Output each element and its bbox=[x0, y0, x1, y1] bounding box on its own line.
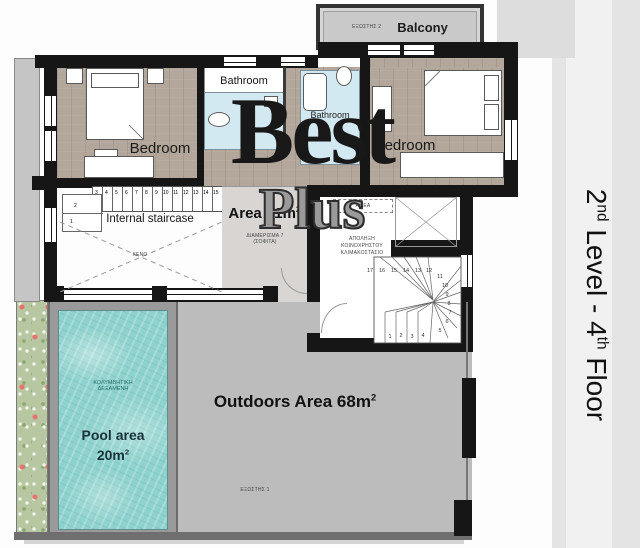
balcony-label: Balcony bbox=[397, 20, 448, 35]
stair-step-number: 12 bbox=[426, 268, 432, 274]
floor-ordinal: th bbox=[593, 337, 610, 350]
stair-step-number: 11 bbox=[437, 274, 443, 280]
internal-stair-treads: 3 4 5 6 7 8 9 10 11 12 13 14 15 bbox=[92, 186, 222, 212]
stair-step-number: 7 bbox=[448, 310, 451, 316]
stair-step-number: 1 bbox=[388, 334, 391, 340]
shaft-box bbox=[395, 197, 457, 247]
stair-step-number: 5 bbox=[438, 328, 441, 334]
nightstand bbox=[147, 68, 164, 84]
bed-pillow bbox=[484, 75, 499, 101]
stair-step-number: 4 bbox=[421, 333, 424, 339]
step-number: 4 bbox=[105, 190, 108, 196]
terrace-corner-pier bbox=[454, 500, 472, 536]
window bbox=[368, 45, 400, 55]
stair-step-number: 9 bbox=[445, 292, 448, 298]
dresser bbox=[84, 156, 154, 178]
window bbox=[224, 57, 256, 66]
level-number: 2 bbox=[581, 189, 612, 205]
stair-step-number: 13 bbox=[415, 268, 421, 274]
wall bbox=[263, 286, 278, 302]
window bbox=[281, 57, 305, 66]
pool-area-label: Pool area 20m2 bbox=[63, 426, 163, 465]
stair-step-number: 14 bbox=[403, 268, 409, 274]
watermark-plus: Plus bbox=[232, 180, 392, 238]
pool-water bbox=[58, 310, 168, 530]
bed-pillow bbox=[484, 104, 499, 130]
bed-fold bbox=[129, 125, 143, 139]
outdoors-greek-label: ΕΞΩΣΤΗΣ 1 bbox=[220, 488, 290, 494]
bottom-edge bbox=[14, 532, 472, 540]
terrace-east-pier bbox=[462, 378, 476, 458]
step-number: 7 bbox=[135, 190, 138, 196]
stair-step-number: 6 bbox=[445, 319, 448, 325]
window bbox=[404, 45, 434, 55]
step-number: 6 bbox=[125, 190, 128, 196]
stair-step-number: 15 bbox=[391, 268, 397, 274]
balcony-greek-label: ΕΞΩΣΤΗΣ 2 bbox=[352, 24, 381, 30]
step-number: 13 bbox=[193, 190, 199, 196]
stair-step-number: 3 bbox=[410, 334, 413, 340]
watermark-best: Best bbox=[192, 84, 432, 179]
step-number: 2 bbox=[74, 203, 77, 209]
window bbox=[45, 96, 56, 126]
level-text: Level - 4 bbox=[581, 222, 612, 337]
step-number: 5 bbox=[115, 190, 118, 196]
wall-nub bbox=[32, 176, 44, 190]
outdoors-label: Outdoors Area 68m2 bbox=[190, 392, 400, 412]
bottom-shadow bbox=[24, 540, 464, 544]
stair-step-number: 2 bbox=[399, 333, 402, 339]
stair-step-number: 8 bbox=[447, 301, 450, 307]
planter-strip bbox=[16, 300, 48, 538]
step-number: 12 bbox=[183, 190, 189, 196]
step-number: 10 bbox=[163, 190, 169, 196]
window bbox=[45, 208, 56, 242]
stair-step-number: 10 bbox=[442, 283, 448, 289]
step-number: 14 bbox=[203, 190, 209, 196]
step-number: 11 bbox=[173, 190, 178, 196]
top-wall bbox=[35, 55, 318, 68]
pool-greek-label: ΚΟΛΥΜΒΗΤΙΚΗ ΔΕΞΑΜΕΝΗ bbox=[63, 380, 163, 393]
bed-pillow bbox=[91, 73, 139, 88]
level-ordinal: nd bbox=[593, 204, 610, 221]
floor-text: Floor bbox=[581, 350, 612, 422]
floor-level-label: 2nd Level - 4th Floor bbox=[572, 155, 612, 455]
left-wall bbox=[44, 55, 57, 302]
window-band-mullion bbox=[57, 294, 277, 295]
void-label: ΚΕΝΟ bbox=[118, 253, 162, 259]
step-number: 15 bbox=[213, 190, 219, 196]
nightstand bbox=[66, 68, 83, 84]
floor-plan-screenshot: 2nd Level - 4th Floor ΕΞΩΣΤΗΣ 2 Balcony … bbox=[0, 0, 640, 548]
step-number: 9 bbox=[155, 190, 158, 196]
window bbox=[45, 131, 56, 161]
stair-step-number: 16 bbox=[379, 268, 385, 274]
bedroom-right-floor-ext bbox=[370, 58, 504, 68]
step-number: 8 bbox=[145, 190, 148, 196]
window bbox=[505, 120, 517, 160]
stair-step-number: 17 bbox=[367, 268, 373, 274]
